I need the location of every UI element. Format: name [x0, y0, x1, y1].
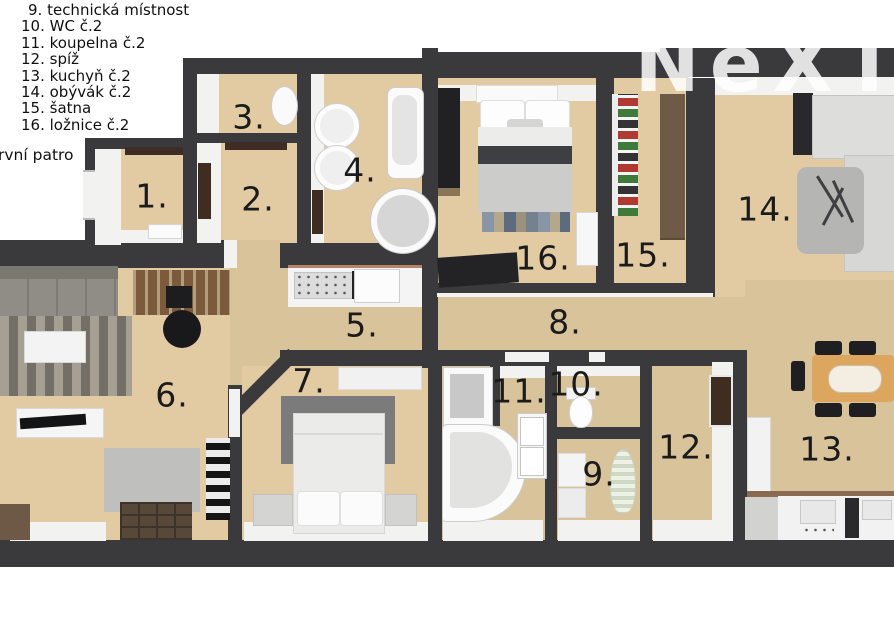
coffee-table [24, 331, 86, 363]
counter-corner [745, 497, 780, 540]
wall [428, 350, 442, 543]
wall [557, 427, 642, 439]
nightstand [253, 494, 293, 526]
wardrobe-base [438, 188, 460, 196]
window-sill-dark [125, 147, 183, 155]
sink [862, 500, 892, 520]
door-leaf [576, 212, 598, 266]
door-leaf [589, 352, 605, 362]
bathtub-basin [392, 95, 417, 165]
room-2-label: 2. [241, 180, 275, 219]
bed-throw [482, 212, 570, 232]
room-15-label: 15. [615, 236, 670, 275]
bed-blanket [478, 127, 572, 146]
wardrobe-dark [438, 88, 460, 194]
room-14-label: 14. [737, 190, 792, 229]
wall [307, 58, 438, 74]
bed-fold [293, 433, 383, 435]
legend-item: 13. kuchyň č.2 [21, 68, 189, 84]
room-9-label: 9. [582, 455, 616, 494]
wall [0, 540, 894, 567]
appliance [354, 269, 400, 303]
doorway-opening [237, 240, 280, 268]
inner-wall [437, 293, 713, 297]
room-1-label: 1. [135, 177, 169, 216]
legend: 9. technická místnost 10. WC č.2 11. kou… [21, 2, 189, 133]
hanging-clothes [618, 94, 638, 216]
floor-label: rvní patro [0, 146, 74, 164]
door [312, 190, 323, 234]
sink [271, 86, 298, 126]
door-leaf [505, 352, 549, 362]
room-16-label: 16. [515, 239, 570, 278]
wall [640, 360, 652, 543]
wall-end-cap [224, 240, 237, 268]
sink [520, 447, 544, 476]
door [709, 375, 733, 427]
door-leaf [229, 389, 240, 437]
sink-round [315, 104, 359, 148]
radiator [148, 224, 182, 239]
stove [294, 272, 354, 299]
legend-item: 15. šatna [21, 100, 189, 116]
room-11-label: 11. [491, 372, 546, 411]
room-7-label: 7. [292, 362, 326, 401]
wall [297, 58, 311, 245]
stove [800, 500, 836, 524]
window-sill [653, 520, 733, 541]
room-13-label: 13. [799, 430, 854, 469]
door [198, 163, 211, 219]
pillow [340, 491, 383, 526]
room-12-label: 12. [658, 428, 713, 467]
room-8-label: 8. [548, 303, 582, 342]
room-6-label: 6. [155, 376, 189, 415]
counter-divider [352, 271, 354, 299]
nightstand [385, 494, 417, 526]
legend-item: 11. koupelna č.2 [21, 35, 189, 51]
oven [845, 498, 859, 538]
chair [815, 341, 842, 355]
legend-item: 10. WC č.2 [21, 18, 189, 34]
legend-item: 9. technická místnost [21, 2, 189, 18]
room-10-label: 10. [548, 365, 603, 404]
legend-item: 12. spíž [21, 51, 189, 67]
chair [849, 341, 876, 355]
stove-knobs [802, 526, 834, 534]
bed-blanket [478, 164, 572, 214]
shower-basin [450, 374, 484, 418]
table-runner [828, 365, 882, 393]
watermark-logo: NeXT [634, 26, 894, 104]
wardrobe-white [338, 367, 422, 390]
side-table [0, 504, 30, 540]
office-chair [163, 310, 201, 348]
chair [815, 403, 842, 417]
wall [686, 78, 715, 293]
wardrobe [660, 94, 685, 240]
chair [849, 403, 876, 417]
room-8-floor [437, 297, 745, 352]
shower-round [371, 189, 435, 253]
window-sill-dark [225, 142, 287, 150]
window-sill [443, 520, 543, 541]
chair [791, 361, 805, 391]
legend-item: 16. ložnice č.2 [21, 117, 189, 133]
shelf-unit [206, 438, 230, 520]
sofa-back [0, 266, 118, 279]
window-sill [558, 520, 640, 541]
sink [520, 417, 544, 446]
room-4-label: 4. [343, 151, 377, 190]
floorplan-image: 1. 2. 3. 4. 5. 6. 7. 8. 9. 10. 11. 12. 1… [0, 0, 894, 625]
legend-item: 14. obývák č.2 [21, 84, 189, 100]
desk-dark [437, 252, 519, 288]
room-5-label: 5. [345, 306, 379, 345]
pillow [297, 491, 340, 526]
wall [183, 58, 313, 74]
room-3-label: 3. [232, 98, 266, 137]
inner-wall [197, 74, 219, 133]
fridge [747, 417, 771, 502]
coffee-table-dark [120, 502, 192, 540]
bed-runner [478, 146, 572, 164]
monitor [166, 286, 192, 308]
